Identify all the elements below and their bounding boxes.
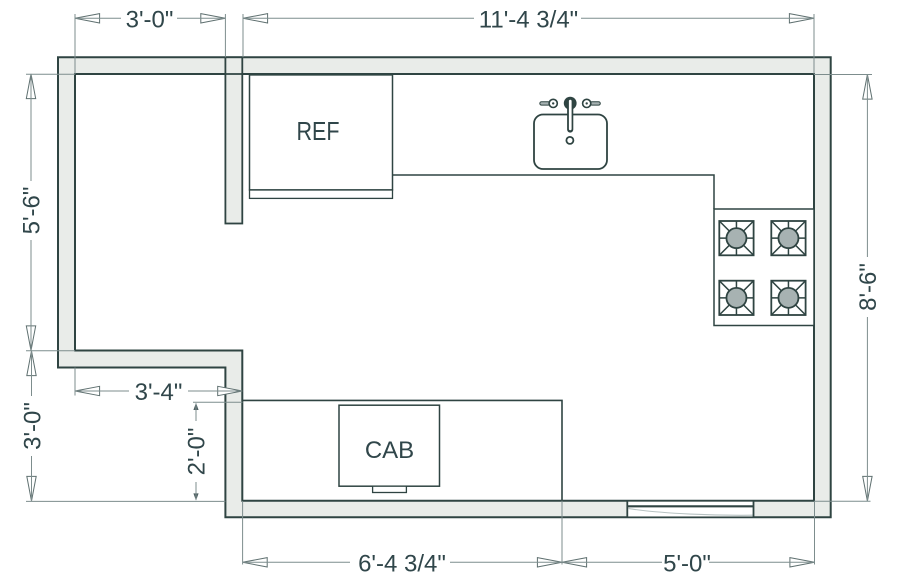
svg-text:5'-0": 5'-0"	[663, 550, 711, 577]
svg-text:2'-0": 2'-0"	[183, 428, 210, 476]
svg-text:3'-0": 3'-0"	[126, 6, 174, 33]
svg-text:5'-6": 5'-6"	[19, 187, 46, 235]
svg-text:11'-4 3/4": 11'-4 3/4"	[479, 6, 578, 33]
svg-text:3'-4": 3'-4"	[135, 379, 183, 406]
svg-text:3'-0": 3'-0"	[19, 402, 46, 450]
svg-text:8'-6": 8'-6"	[855, 263, 882, 311]
svg-text:6'-4 3/4": 6'-4 3/4"	[358, 550, 446, 577]
svg-text:REF: REF	[297, 118, 340, 146]
svg-text:CAB: CAB	[365, 437, 414, 464]
